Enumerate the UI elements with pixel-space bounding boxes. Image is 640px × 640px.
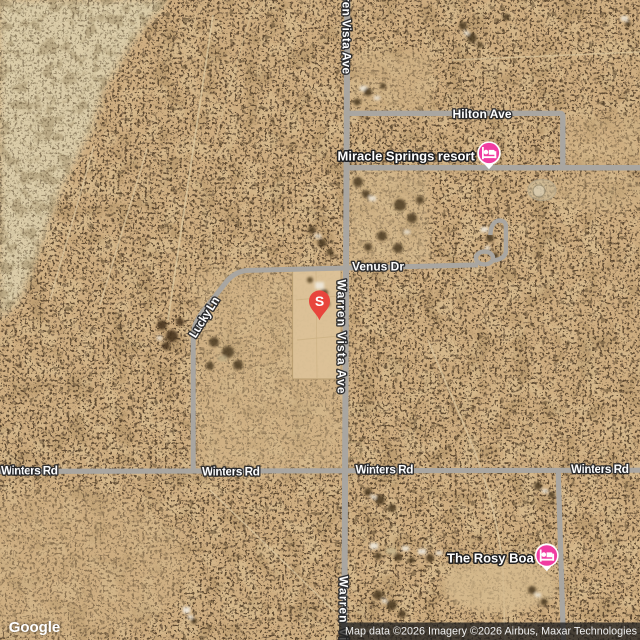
svg-text:Warren Vista Ave: Warren Vista Ave <box>340 0 354 74</box>
svg-text:The Rosy Boa: The Rosy Boa <box>447 551 534 566</box>
svg-text:Google: Google <box>9 619 61 636</box>
svg-text:Map data ©2026 Imagery ©2026 A: Map data ©2026 Imagery ©2026 Airbus, Max… <box>345 626 638 638</box>
svg-text:Hilton Ave: Hilton Ave <box>453 107 512 121</box>
svg-text:Winters Rd: Winters Rd <box>202 464 260 478</box>
svg-text:Miracle Springs resort: Miracle Springs resort <box>338 149 476 164</box>
svg-text:Venus Dr: Venus Dr <box>352 259 404 273</box>
svg-text:Warren Vista Ave: Warren Vista Ave <box>335 280 349 394</box>
svg-text:Winters Rd: Winters Rd <box>1 463 58 477</box>
svg-text:Winters Rd: Winters Rd <box>356 462 414 476</box>
svg-text:Winters Rd: Winters Rd <box>571 462 629 476</box>
svg-text:S: S <box>315 293 324 309</box>
